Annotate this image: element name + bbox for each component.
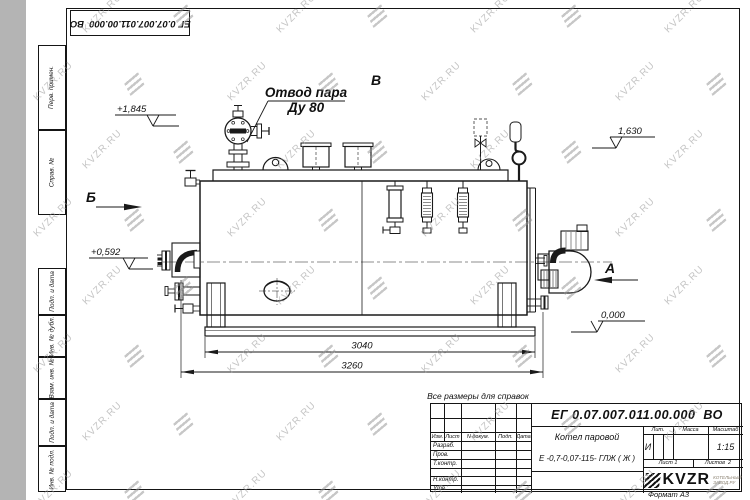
top-fittings-right — [474, 119, 526, 181]
gauge-glass-1 — [422, 181, 433, 233]
elevation-top-left: +1,845 — [117, 104, 147, 115]
steam-outlet-valve — [225, 106, 269, 171]
level-marks — [89, 115, 655, 332]
callout-line2: Ду 80 — [287, 100, 325, 115]
safety-valve-1 — [301, 143, 331, 170]
burner-assembly — [527, 188, 591, 312]
water-level-column — [383, 181, 403, 234]
lifting-lug — [260, 158, 291, 171]
dimension-3040: 3040 — [351, 341, 373, 352]
elevation-top-right: 1,630 — [618, 126, 642, 137]
support-frame — [205, 283, 535, 336]
dimension-3260: 3260 — [341, 361, 363, 372]
reference-note: Все размеры для справок — [427, 391, 530, 401]
manhole — [259, 278, 295, 305]
gauge-glass-2 — [458, 181, 469, 233]
view-label-b: Б — [86, 189, 96, 205]
view-label-v: В — [371, 72, 381, 88]
elevation-mid-left: +0,592 — [91, 247, 121, 258]
elevation-zero: 0,000 — [601, 310, 625, 321]
boiler-shell — [163, 170, 612, 315]
drawing-sheet: Отвод пара Ду 80 Б В А +1,845 +0,592 1,6… — [0, 0, 750, 500]
view-label-a: А — [604, 260, 615, 276]
left-fittings — [157, 171, 200, 314]
safety-valve-2 — [343, 143, 373, 170]
callout-line1: Отвод пара — [265, 85, 348, 100]
boiler-drawing: Отвод пара Ду 80 Б В А +1,845 +0,592 1,6… — [0, 0, 750, 500]
